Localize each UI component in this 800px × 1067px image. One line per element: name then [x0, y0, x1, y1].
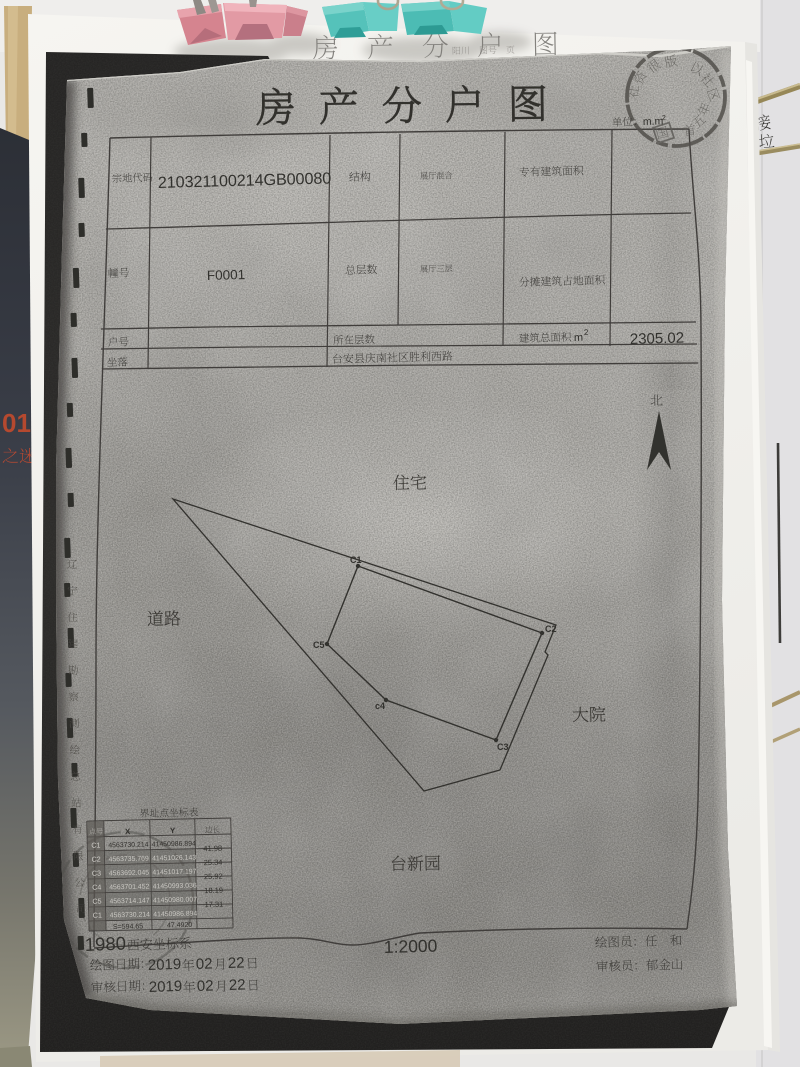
svg-text:C2: C2 [91, 855, 100, 864]
svg-text:02: 02 [197, 977, 214, 995]
svg-text:m.m: m.m [643, 115, 664, 128]
svg-text:41450993.036: 41450993.036 [153, 883, 197, 891]
svg-text:C1: C1 [350, 555, 362, 565]
svg-text:41450986.894: 41450986.894 [153, 911, 197, 919]
svg-text:41450980.007: 41450980.007 [153, 897, 197, 905]
svg-text:4563735.769: 4563735.769 [109, 856, 150, 864]
svg-text:2019: 2019 [148, 956, 182, 974]
svg-text:18.19: 18.19 [204, 886, 223, 895]
svg-text:S=594.65: S=594.65 [113, 923, 143, 931]
svg-text:2305.02: 2305.02 [630, 330, 685, 348]
svg-text:C1: C1 [93, 911, 102, 920]
svg-text:C1: C1 [91, 841, 100, 850]
svg-text:X: X [125, 827, 131, 836]
svg-text:1:2000: 1:2000 [384, 936, 438, 957]
svg-text:41451026.143: 41451026.143 [152, 855, 196, 863]
svg-text:41.98: 41.98 [203, 844, 222, 853]
svg-text:C5: C5 [313, 640, 325, 650]
svg-text:22: 22 [228, 954, 245, 972]
svg-text:22: 22 [229, 976, 246, 994]
svg-text:47.4920: 47.4920 [167, 922, 193, 930]
svg-text:Y: Y [170, 826, 176, 835]
svg-text:4563730.214: 4563730.214 [108, 842, 149, 850]
svg-text:1980: 1980 [84, 933, 126, 955]
svg-text:m: m [574, 332, 583, 344]
svg-text:4563701.452: 4563701.452 [109, 884, 150, 892]
svg-text:2: 2 [662, 115, 666, 122]
svg-text:25.92: 25.92 [204, 872, 223, 881]
svg-text:c4: c4 [375, 701, 385, 711]
svg-text:F0001: F0001 [207, 267, 246, 283]
svg-text:C3: C3 [92, 869, 101, 878]
svg-text:02: 02 [196, 955, 213, 973]
svg-text:2019: 2019 [149, 978, 183, 996]
svg-text:41451017.197: 41451017.197 [152, 869, 196, 877]
svg-text:4563692.045: 4563692.045 [109, 870, 150, 878]
svg-text:2: 2 [584, 328, 589, 337]
svg-text:C3: C3 [497, 742, 509, 752]
svg-text:41450986.894: 41450986.894 [152, 841, 196, 849]
svg-text:01: 01 [2, 408, 31, 438]
svg-text:17.31: 17.31 [204, 900, 223, 909]
svg-text:4563714.147: 4563714.147 [109, 898, 150, 906]
svg-text:4563730.214: 4563730.214 [110, 912, 151, 920]
svg-text:C4: C4 [92, 883, 101, 892]
svg-text:25.34: 25.34 [204, 858, 223, 867]
svg-text:C2: C2 [545, 624, 557, 634]
svg-text:C5: C5 [92, 897, 101, 906]
